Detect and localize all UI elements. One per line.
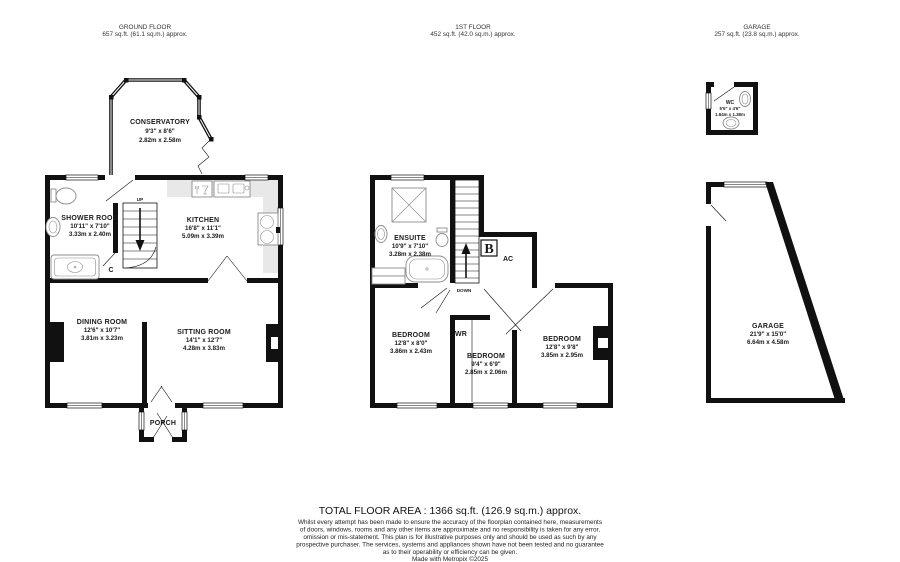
shower-room-imperial: 10'11" x 7'10" [70, 223, 110, 230]
garage-plan: WC 5'5" x 4'6" 1.64m x 1.38m GARAGE 21'9… [706, 82, 845, 403]
disclaimer-line-2: of doors, windows, rooms and any other i… [300, 527, 600, 534]
wc-toilet-icon [740, 92, 751, 107]
front-door-leaf [161, 386, 172, 402]
bedroom-right-chimney [593, 326, 608, 360]
sitting-room-name: SITTING ROOM [177, 329, 231, 336]
airing-cupboard-label: AC [503, 256, 513, 263]
ensuite-metric: 3.28m x 2.38m [389, 251, 431, 258]
conservatory-french-door [198, 139, 211, 174]
toilet-icon [51, 188, 76, 204]
dining-room-metric: 3.81m x 3.23m [81, 335, 123, 342]
wc-metric: 1.64m x 1.38m [715, 112, 745, 117]
conservatory-metric: 2.82m x 2.58m [139, 137, 181, 144]
plan-footer: TOTAL FLOOR AREA : 1366 sq.ft. (126.9 sq… [296, 505, 604, 562]
shower-tray-icon [51, 255, 99, 279]
kitchen-double-door [208, 256, 247, 281]
sitting-room-imperial: 14'1" x 12'7" [186, 337, 222, 344]
understairs-cupboard: C [103, 253, 115, 274]
wc-basin-icon [723, 117, 739, 129]
porch-name: PORCH [150, 420, 176, 427]
bedroom-right-name: BEDROOM [543, 336, 581, 343]
front-door [151, 386, 162, 402]
wc-door [714, 87, 734, 101]
conservatory-to-hall-door [106, 180, 133, 201]
kitchen-metric: 5.09m x 3.39m [182, 233, 224, 240]
boiler-box: B [481, 240, 497, 257]
bedroom-middle-imperial: 9'4" x 6'9" [471, 361, 501, 368]
garage-structure: GARAGE 21'9" x 15'0" 6.64m x 4.58m [706, 182, 845, 403]
stairs-up: UP [123, 197, 157, 268]
ensuite-basin-icon [375, 226, 387, 243]
bedroom-middle-name: BEDROOM [467, 353, 505, 360]
ground-floor-plan: UP C [45, 78, 283, 442]
garage-diagonal-wall [765, 182, 845, 403]
cupboard-door [103, 253, 115, 266]
bedroom-middle-metric: 2.85m x 2.06m [465, 369, 507, 376]
disclaimer-line-3: omission or mis-statement. This plan is … [303, 534, 597, 541]
disclaimer-line-5: as to their operability or efficiency ca… [383, 549, 518, 556]
garage-imperial: 21'9" x 15'0" [750, 331, 786, 338]
credit-line: Made with Metropix ©2025 [412, 555, 489, 562]
ensuite-shower-icon [392, 188, 426, 222]
disclaimer-line-1: Whilst every attempt has been made to en… [298, 519, 602, 526]
stairs-down: DOWN [455, 180, 479, 293]
wc-imperial: 5'5" x 4'6" [720, 106, 741, 111]
bedroom-left-door [436, 290, 450, 313]
cupboard-label: C [108, 267, 113, 274]
dining-room-imperial: 12'6" x 10'7" [84, 327, 120, 334]
ensuite-name: ENSUITE [394, 235, 426, 242]
sitting-room-metric: 4.28m x 3.83m [183, 345, 225, 352]
total-floor-area: TOTAL FLOOR AREA : 1366 sq.ft. (126.9 sq… [319, 505, 581, 517]
stairs-down-label: DOWN [457, 288, 472, 293]
garage-side-door [711, 205, 726, 221]
ground-floor-walls [45, 175, 283, 408]
dining-room-name: DINING ROOM [77, 319, 127, 326]
ensuite-imperial: 10'9" x 7'10" [392, 243, 428, 250]
wardrobe-label: WR [455, 331, 467, 338]
bedroom-left-name: BEDROOM [392, 332, 430, 339]
ensuite-shelf-icon [372, 268, 405, 284]
first-floor-plan: DOWN B AC [370, 175, 613, 408]
dishwasher-icon [192, 181, 212, 197]
bedroom-left-metric: 3.86m x 2.43m [390, 348, 432, 355]
garage-header-title: GARAGE [743, 24, 770, 31]
double-sink-icon [214, 181, 250, 197]
bedroom-right-imperial: 12'8" x 9'8" [546, 344, 579, 351]
ground-floor-windows [66, 175, 283, 408]
bath-icon [406, 256, 448, 282]
kitchen-name: KITCHEN [187, 217, 220, 224]
hob-icon [258, 213, 280, 245]
conservatory-name: CONSERVATORY [130, 119, 190, 126]
bedroom-right-door [506, 289, 553, 334]
ensuite-toilet-icon [436, 228, 448, 247]
first-floor-header-title: 1ST FLOOR [455, 24, 491, 31]
shower-room-metric: 3.33m x 2.40m [69, 231, 111, 238]
ground-floor-header-title: GROUND FLOOR [119, 24, 172, 31]
first-floor-doors [421, 288, 553, 334]
first-floor-header-area: 452 sq.ft. (42.0 sq.m.) approx. [430, 31, 515, 38]
bedroom-left-imperial: 12'8" x 8'0" [395, 340, 428, 347]
floorplan-page: GROUND FLOOR 657 sq.ft. (61.1 sq.m.) app… [0, 0, 900, 562]
shower-room-name: SHOWER ROOM [61, 215, 118, 222]
kitchen-imperial: 16'8" x 11'1" [185, 225, 221, 232]
floorplan-drawing: GROUND FLOOR 657 sq.ft. (61.1 sq.m.) app… [0, 0, 900, 562]
basin-icon [46, 218, 60, 237]
garage-name: GARAGE [752, 323, 784, 330]
stairs-up-label: UP [137, 197, 143, 202]
ground-floor-header-area: 657 sq.ft. (61.1 sq.m.) approx. [102, 31, 187, 38]
garage-metric: 6.64m x 4.58m [747, 339, 789, 346]
bedroom-right-metric: 3.85m x 2.95m [541, 352, 583, 359]
disclaimer-line-4: prospective purchaser. The services, sys… [296, 542, 604, 549]
boiler-label: B [484, 242, 493, 257]
wc-structure: WC 5'5" x 4'6" 1.64m x 1.38m [706, 82, 758, 135]
conservatory-imperial: 9'3" x 8'6" [145, 128, 175, 135]
plan-headers: GROUND FLOOR 657 sq.ft. (61.1 sq.m.) app… [102, 24, 799, 38]
garage-header-area: 257 sq.ft. (23.8 sq.m.) approx. [714, 31, 799, 38]
ensuite-door [421, 288, 447, 308]
